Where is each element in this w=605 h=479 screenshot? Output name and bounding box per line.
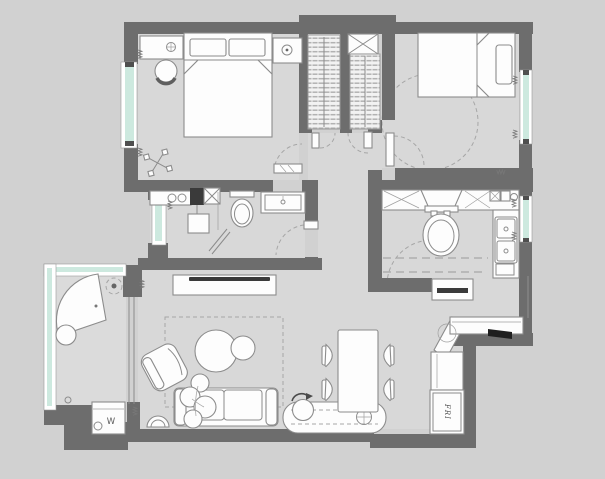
coffee-table-large [195,330,237,372]
hall-cabinet-top [450,317,523,334]
toilet-tank [230,191,254,197]
door-leaf-bedroom-right [386,133,394,166]
balcony-sliding-door [129,297,134,404]
wall-top-step [299,15,396,23]
window-glass [47,267,123,272]
wall-living-bottom-right [370,434,476,448]
planter-pot [56,325,76,345]
wall-closet-right [382,34,395,120]
pillow [496,45,512,84]
wall-entry-right [463,346,476,448]
dining-table [338,330,378,412]
hall-cabinet-run [431,352,463,390]
rack-corner [162,149,168,155]
window-sill [523,70,529,75]
door-leaf-closet-left [312,133,319,148]
dresser [140,36,183,59]
plant-leaf [184,410,202,428]
window-glass [125,66,134,144]
wall-left-upper-a [124,22,138,64]
window-glass [155,202,162,241]
door-leaf-bathroom [304,221,318,229]
fridge-label: FRI [443,403,451,420]
shower-tray [188,214,209,233]
window-bedroom-right [520,70,532,144]
range-hood [421,190,462,206]
lamp-dot [286,49,289,52]
water-heater [190,188,204,205]
window-glass [47,268,52,406]
wall-right-a [519,22,532,72]
door-leaf-closet-right [364,132,372,148]
window-sill [523,139,529,144]
tv-screen [189,277,270,281]
hood-bar [425,206,458,212]
rack-corner [148,170,154,176]
bench-cushion [293,400,314,421]
sprinkler-icon [112,284,117,289]
cabinet-dark-bar [437,288,468,293]
corridor-floor [318,180,368,270]
wall-bathroom-right [305,180,318,222]
floor-plan-drawing: FRI W [0,0,605,479]
window-bedroom-left [121,62,137,148]
window-kitchen [520,196,532,242]
rack-corner [144,154,150,160]
window-sill [523,238,529,242]
window-glass [523,200,529,238]
wall-bedroom-right-bottom [395,168,533,180]
floor-plan: FRI W [0,0,605,479]
window-sill [125,141,134,146]
wall-top [125,22,533,34]
pillow [190,39,226,56]
wall-living-top [138,258,322,270]
pillow [229,39,265,56]
entry: FRI [430,317,523,434]
washer-label: W [107,417,116,427]
sofa-armrest [266,389,277,425]
outlet-box [501,191,510,201]
washing-machine: W [92,402,125,434]
rack-corner [166,165,172,171]
fan-pivot-dot [95,305,98,308]
window-sill [523,196,529,200]
window-sill [125,62,134,67]
wall-living-left-pier [127,402,140,430]
window-glass [523,74,529,140]
wall-kitchen-left [368,170,382,292]
coffee-table-small [231,336,255,360]
fridge: FRI [430,390,464,434]
wall-kitchen-bottom [368,278,432,292]
